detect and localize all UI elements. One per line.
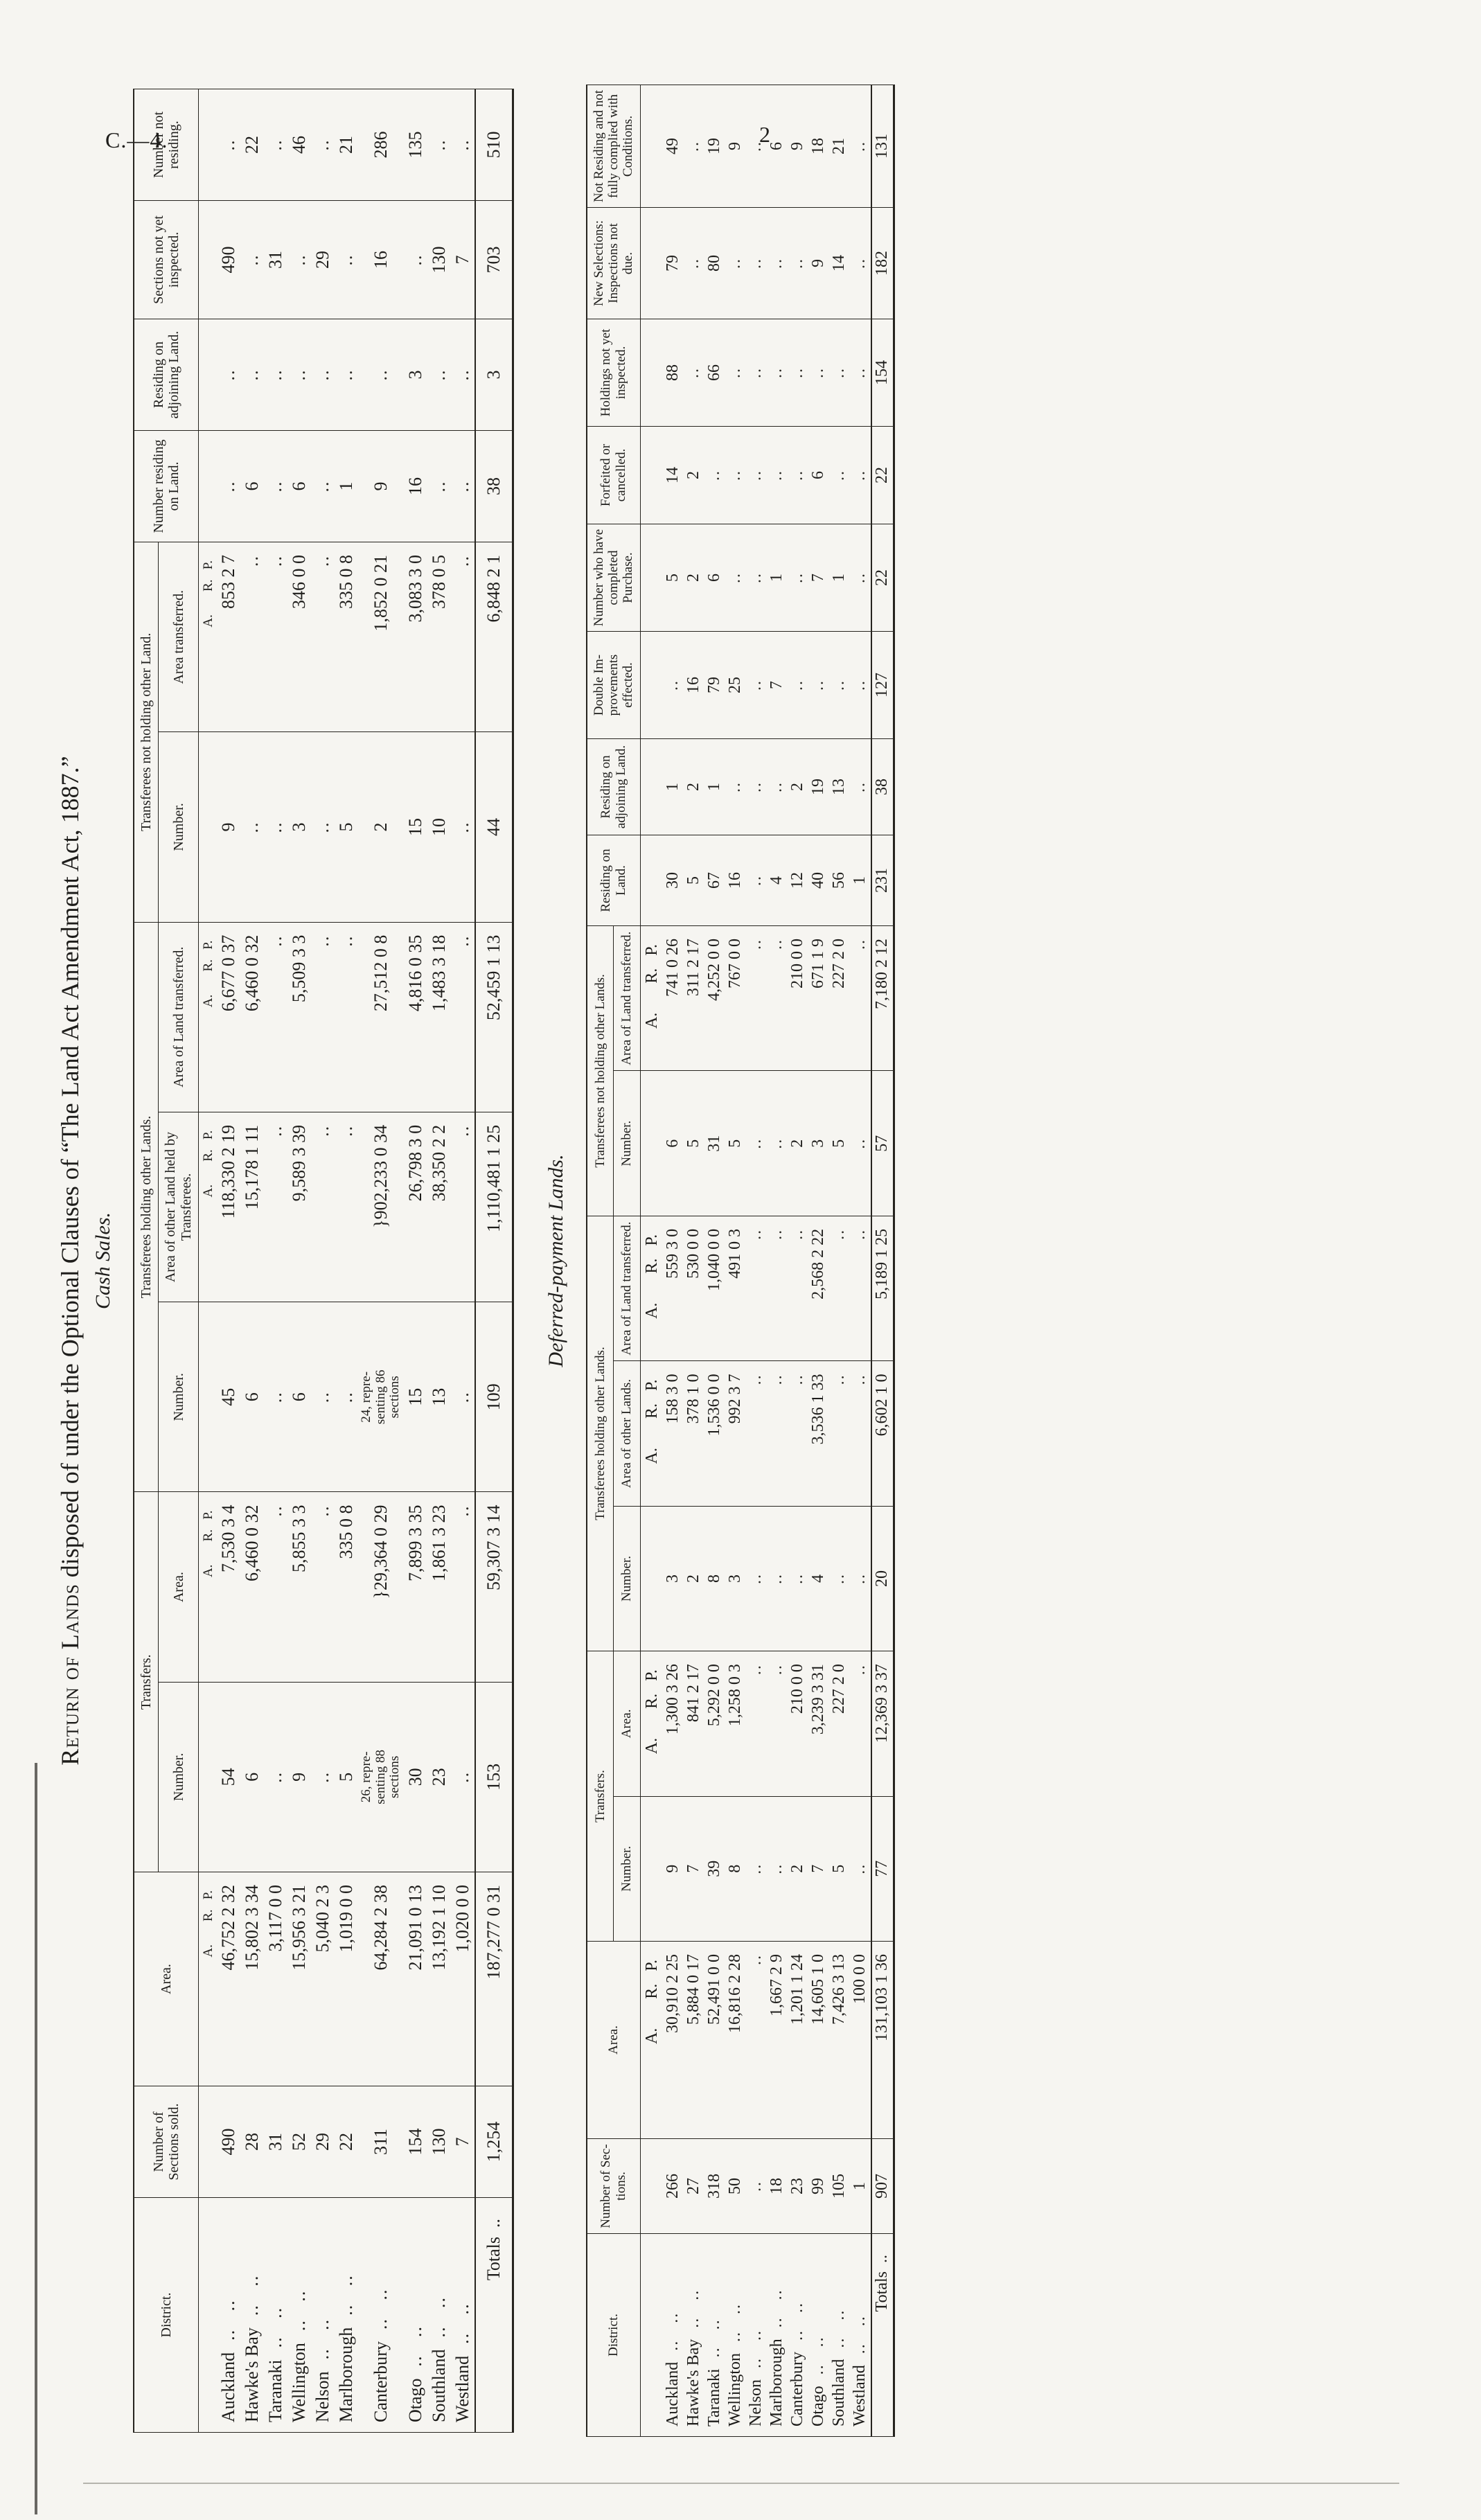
data-cell: 5 xyxy=(725,1071,746,1216)
totals-cell: 231 xyxy=(871,835,894,926)
totals-cell: 38 xyxy=(475,431,513,542)
col-header-not-holding-area-transferred: Area of Land transferred. xyxy=(614,926,640,1071)
data-cell: 15,178 1 11 xyxy=(240,1112,264,1302)
col-header-not-residing: Number not residing. xyxy=(134,89,199,201)
totals-label-cell: Totals .. xyxy=(871,2234,894,2437)
data-cell: .. xyxy=(788,524,808,632)
data-cell: 1 xyxy=(663,739,684,835)
data-cell: .. xyxy=(725,427,746,524)
district-name: Southland xyxy=(830,2359,848,2426)
col-header-completed-purchase: Number who have completed Purchase. xyxy=(587,524,640,632)
data-cell: 3 xyxy=(808,1071,829,1216)
data-cell: 158 3 0 xyxy=(663,1361,684,1506)
data-cell: 22 xyxy=(335,2086,358,2198)
district-name: Southland xyxy=(429,2350,449,2422)
data-cell: 25 xyxy=(725,632,746,739)
data-cell: .. xyxy=(767,427,788,524)
arp-label: A. R. P. xyxy=(199,922,218,1112)
data-cell: 29 xyxy=(311,2086,335,2198)
data-cell: .. xyxy=(850,1361,871,1506)
district-name: Wellington xyxy=(289,2343,309,2422)
arp-spacer xyxy=(640,1506,663,1651)
table-row: Marlborough .. ..221,019 0 05335 0 8....… xyxy=(335,89,358,2433)
col-header-sections-sold: Number of Sections sold. xyxy=(134,2086,199,2198)
data-cell: .. xyxy=(788,1216,808,1360)
data-cell: .. xyxy=(287,201,311,319)
data-cell: .. xyxy=(746,1651,767,1796)
district-name: Marlborough xyxy=(336,2327,356,2422)
data-cell: 46 xyxy=(287,89,311,201)
district-name: Otago xyxy=(405,2378,425,2422)
col-header-district: District. xyxy=(134,2198,199,2433)
totals-cell: 3 xyxy=(475,319,513,431)
col-header-holding-number: Number. xyxy=(159,1302,199,1492)
data-cell: 9 xyxy=(217,732,240,922)
district-name: Taranaki xyxy=(705,2368,723,2426)
totals-cell: 6,848 2 1 xyxy=(475,542,513,732)
data-cell: .. xyxy=(725,739,746,835)
data-cell: .. xyxy=(451,542,475,732)
totals-cell: 5,189 1 25 xyxy=(871,1216,894,1360)
data-cell: .. xyxy=(767,1506,788,1651)
deferred-payment-table: District. Number of Sec-tions. Area. Tra… xyxy=(586,85,895,2437)
arp-label: A. R. P. xyxy=(640,1216,663,1360)
data-cell: 490 xyxy=(217,2086,240,2198)
table-row: Auckland .. ..49046,752 2 32547,530 3 44… xyxy=(217,89,240,2433)
data-cell: 1 xyxy=(335,431,358,542)
district-name: Westland xyxy=(452,2356,472,2422)
data-cell: .. xyxy=(829,1506,850,1651)
totals-cell: 20 xyxy=(871,1506,894,1651)
data-cell: 6 xyxy=(287,1302,311,1492)
data-cell: .. xyxy=(767,1071,788,1216)
data-cell: 1,300 3 26 xyxy=(663,1651,684,1796)
data-cell: .. xyxy=(311,319,335,431)
table-row: Marlborough .. ..181,667 2 9............… xyxy=(767,85,788,2437)
table-row: Nelson .. ..............................… xyxy=(746,85,767,2437)
totals-cell: 703 xyxy=(475,201,513,319)
district-cell: Taranaki .. .. xyxy=(264,2198,287,2433)
data-cell: 1 xyxy=(850,2139,871,2234)
data-cell: 56 xyxy=(829,835,850,926)
district-cell: Wellington .. .. xyxy=(287,2198,311,2433)
data-cell: 14 xyxy=(829,208,850,319)
arp-label: A. R. P. xyxy=(640,1651,663,1796)
district-cell: Otago .. .. xyxy=(404,2198,427,2433)
totals-cell: 57 xyxy=(871,1071,894,1216)
data-cell: .. xyxy=(767,1216,788,1360)
data-cell: 9 xyxy=(808,208,829,319)
district-cell: Hawke's Bay .. .. xyxy=(240,2198,264,2433)
totals-row: Totals ..907131,103 1 367712,369 3 37206… xyxy=(871,85,894,2437)
data-cell: .. xyxy=(767,208,788,319)
data-cell: .. xyxy=(264,89,287,201)
col-header-forfeited: Forfeited or cancelled. xyxy=(587,427,640,524)
data-cell: 7,530 3 4 xyxy=(217,1492,240,1682)
arp-spacer xyxy=(199,431,218,542)
title-quote: “The Land Act Amendment Act, 1887.” xyxy=(56,756,84,1153)
data-cell: .. xyxy=(335,1112,358,1302)
data-cell: 5,884 0 17 xyxy=(684,1942,704,2139)
data-cell: 1 xyxy=(704,739,725,835)
data-cell: 99 xyxy=(808,2139,829,2234)
data-cell: .. xyxy=(264,922,287,1112)
leader-dots: .. .. xyxy=(242,2275,262,2328)
data-cell: 26,798 3 0 xyxy=(404,1112,427,1302)
district-cell: Hawke's Bay .. .. xyxy=(684,2234,704,2437)
arp-spacer xyxy=(199,201,218,319)
data-cell: 3,117 0 0 xyxy=(264,1872,287,2086)
data-cell: .. xyxy=(311,542,335,732)
data-cell: 30,910 2 25 xyxy=(663,1942,684,2139)
data-cell: 2 xyxy=(684,427,704,524)
totals-cell: 131,103 1 36 xyxy=(871,1942,894,2139)
data-cell: 16,816 2 28 xyxy=(725,1942,746,2139)
data-cell: 66 xyxy=(704,319,725,427)
col-header-holding-number: Number. xyxy=(614,1506,640,1651)
cash-sales-heading: Cash Sales. xyxy=(91,76,115,2445)
data-cell: 7,426 3 13 xyxy=(829,1942,850,2139)
data-cell: .. xyxy=(746,1361,767,1506)
col-header-holding-area-transferred: Area of Land transferred. xyxy=(159,922,199,1112)
data-cell: 5 xyxy=(335,732,358,922)
district-name: Westland xyxy=(851,2365,869,2426)
data-cell: 841 2 17 xyxy=(684,1651,704,1796)
data-cell: 5 xyxy=(829,1796,850,1941)
data-cell: 30 xyxy=(663,835,684,926)
data-cell: 80 xyxy=(704,208,725,319)
data-cell: .. xyxy=(451,922,475,1112)
data-cell: 52,491 0 0 xyxy=(704,1942,725,2139)
arp-spacer xyxy=(640,739,663,835)
data-cell: 992 3 7 xyxy=(725,1361,746,1506)
data-cell: .. xyxy=(808,632,829,739)
data-cell: .. xyxy=(240,542,264,732)
data-cell: 378 0 5 xyxy=(427,542,451,732)
data-cell: .. xyxy=(335,319,358,431)
district-name: Hawke's Bay xyxy=(242,2327,262,2422)
data-cell: 21 xyxy=(829,85,850,208)
data-cell: 135 xyxy=(404,89,427,201)
data-cell: }902,233 0 34 xyxy=(358,1112,404,1302)
col-header-transfers-number: Number. xyxy=(614,1796,640,1941)
data-cell: 6 xyxy=(808,427,829,524)
data-cell: .. xyxy=(850,85,871,208)
totals-cell: 44 xyxy=(475,732,513,922)
totals-cell: 182 xyxy=(871,208,894,319)
data-cell: 3 xyxy=(725,1506,746,1651)
data-cell: 9 xyxy=(663,1796,684,1941)
data-cell: 79 xyxy=(704,632,725,739)
totals-row: Totals ..1,254187,277 0 3115359,307 3 14… xyxy=(475,89,513,2433)
col-header-district: District. xyxy=(587,2234,640,2437)
data-cell: .. xyxy=(684,208,704,319)
data-cell: 9,589 3 39 xyxy=(287,1112,311,1302)
arp-label: A. R. P. xyxy=(640,1942,663,2139)
data-cell: 8 xyxy=(725,1796,746,1941)
arp-subheader-row: A. R. P.A. R. P.A. R. P.A. R. P.A. R. P. xyxy=(640,85,663,2437)
data-cell: .. xyxy=(829,1216,850,1360)
data-cell: 311 2 17 xyxy=(684,926,704,1071)
data-cell: .. xyxy=(829,1361,850,1506)
table-row: Nelson .. ..295,040 2 3.................… xyxy=(311,89,335,2433)
data-cell: .. xyxy=(264,1112,287,1302)
col-header-not-holding-number: Number. xyxy=(614,1071,640,1216)
data-cell: .. xyxy=(311,1112,335,1302)
col-header-residing-adjoining: Residing on adjoining Land. xyxy=(587,739,640,835)
leader-dots: .. .. xyxy=(664,2312,682,2362)
data-cell: .. xyxy=(311,89,335,201)
totals-cell: 510 xyxy=(475,89,513,201)
arp-spacer xyxy=(199,1682,218,1872)
data-cell: 16 xyxy=(404,431,427,542)
data-cell: .. xyxy=(767,1796,788,1941)
data-cell: 1,861 3 23 xyxy=(427,1492,451,1682)
data-cell: 2 xyxy=(684,1506,704,1651)
data-cell: 50 xyxy=(725,2139,746,2234)
data-cell: 118,330 2 19 xyxy=(217,1112,240,1302)
district-cell: Canterbury .. .. xyxy=(358,2198,404,2433)
data-cell: 1 xyxy=(829,524,850,632)
totals-cell: 52,459 1 13 xyxy=(475,922,513,1112)
district-name: Canterbury xyxy=(788,2352,806,2426)
table-row: Southland .. ..1057,426 3 135227 2 0....… xyxy=(829,85,850,2437)
data-cell: .. xyxy=(217,431,240,542)
data-cell: .. xyxy=(311,1302,335,1492)
data-cell: 4 xyxy=(808,1506,829,1651)
data-cell: .. xyxy=(264,319,287,431)
col-header-holding-area-transferred: Area of Land transferred. xyxy=(614,1216,640,1360)
district-cell: Westland .. .. xyxy=(451,2198,475,2433)
data-cell: 5 xyxy=(335,1682,358,1872)
data-cell: .. xyxy=(850,1216,871,1360)
leader-dots: .. .. xyxy=(371,2289,391,2342)
arp-label: A. R. P. xyxy=(199,1112,218,1302)
data-cell: 7 xyxy=(684,1796,704,1941)
arp-subheader-row: A. R. P.A. R. P.A. R. P.A. R. P.A. R. P. xyxy=(199,89,218,2433)
data-cell: 18 xyxy=(767,2139,788,2234)
district-name: Auckland xyxy=(218,2352,238,2422)
arp-spacer xyxy=(199,89,218,201)
data-cell: 7 xyxy=(808,1796,829,1941)
data-cell: 19 xyxy=(704,85,725,208)
table-row: Westland .. ..71,020 0 0................… xyxy=(451,89,475,2433)
data-cell: 1 xyxy=(850,835,871,926)
data-cell: 1,040 0 0 xyxy=(704,1216,725,1360)
col-header-not-holding-area-transferred: Area transferred. xyxy=(159,542,199,732)
col-header-double-improvements: Double Im-provements effected. xyxy=(587,632,640,739)
arp-spacer xyxy=(640,319,663,427)
data-cell: .. xyxy=(335,922,358,1112)
data-cell: 490 xyxy=(217,201,240,319)
data-cell: 46,752 2 32 xyxy=(217,1872,240,2086)
table-row: Wellington .. ..5215,956 3 2195,855 3 36… xyxy=(287,89,311,2433)
data-cell: 15,956 3 21 xyxy=(287,1872,311,2086)
data-cell: .. xyxy=(217,89,240,201)
arp-spacer xyxy=(199,2198,218,2433)
arp-spacer xyxy=(640,427,663,524)
arp-spacer xyxy=(640,835,663,926)
data-cell: 6 xyxy=(240,1302,264,1492)
data-cell: .. xyxy=(451,732,475,922)
data-cell: 27,512 0 8 xyxy=(358,922,404,1112)
arp-spacer xyxy=(640,2234,663,2437)
data-cell: .. xyxy=(746,835,767,926)
data-cell: .. xyxy=(746,208,767,319)
data-cell: 227 2 0 xyxy=(829,1651,850,1796)
data-cell: 286 xyxy=(358,89,404,201)
col-header-residing-on-land: Residing on Land. xyxy=(587,835,640,926)
data-cell: 31 xyxy=(264,2086,287,2198)
data-cell: .. xyxy=(451,1682,475,1872)
data-cell: 100 0 0 xyxy=(850,1942,871,2139)
district-cell: Taranaki .. .. xyxy=(704,2234,725,2437)
data-cell: .. xyxy=(264,1682,287,1872)
data-cell: 671 1 9 xyxy=(808,926,829,1071)
data-cell: .. xyxy=(767,1651,788,1796)
table-row: Otago .. ..15421,091 0 13307,899 3 35152… xyxy=(404,89,427,2433)
data-cell: 15 xyxy=(404,1302,427,1492)
data-cell: .. xyxy=(264,1302,287,1492)
data-cell: .. xyxy=(746,739,767,835)
data-cell: 5 xyxy=(684,835,704,926)
col-header-area-of-other-lands: Area of other Lands. xyxy=(614,1361,640,1506)
data-cell: 5,509 3 3 xyxy=(287,922,311,1112)
col-header-number-of-sections: Number of Sec-tions. xyxy=(587,2139,640,2234)
data-cell: .. xyxy=(451,1112,475,1302)
data-cell: 64,284 2 38 xyxy=(358,1872,404,2086)
totals-cell: 131 xyxy=(871,85,894,208)
data-cell: 23 xyxy=(427,1682,451,1872)
data-cell: 266 xyxy=(663,2139,684,2234)
data-cell: 1,852 0 21 xyxy=(358,542,404,732)
totals-cell: 77 xyxy=(871,1796,894,1941)
data-cell: .. xyxy=(311,732,335,922)
leader-dots: .. .. xyxy=(289,2290,309,2343)
data-cell: 13,192 1 10 xyxy=(427,1872,451,2086)
data-cell: 2 xyxy=(788,739,808,835)
data-cell: 6 xyxy=(240,431,264,542)
data-cell: 1,258 0 3 xyxy=(725,1651,746,1796)
data-cell: 2 xyxy=(684,739,704,835)
data-cell: 67 xyxy=(704,835,725,926)
table-row: Taranaki .. ..313,117 0 0...............… xyxy=(264,89,287,2433)
data-cell: .. xyxy=(767,1361,788,1506)
data-cell: 530 0 0 xyxy=(684,1216,704,1360)
data-cell: 10 xyxy=(427,732,451,922)
col-group-transfers: Transfers. xyxy=(587,1651,614,1942)
data-cell: 346 0 0 xyxy=(287,542,311,732)
totals-cell: 187,277 0 31 xyxy=(475,1872,513,2086)
totals-cell: 1,110,481 1 25 xyxy=(475,1112,513,1302)
data-cell: .. xyxy=(829,427,850,524)
data-cell: 6 xyxy=(240,1682,264,1872)
district-cell: Nelson .. .. xyxy=(311,2198,335,2433)
arp-spacer xyxy=(640,632,663,739)
table-row: Canterbury .. ..231,201 1 242210 0 0....… xyxy=(788,85,808,2437)
scan-bottom-line xyxy=(83,2483,1399,2484)
col-header-new-selections: New Selections: Inspections not due. xyxy=(587,208,640,319)
data-cell: 3 xyxy=(404,319,427,431)
data-cell: 7 xyxy=(767,632,788,739)
table-row: Southland .. ..13013,192 1 10231,861 3 2… xyxy=(427,89,451,2433)
cash-table-header: District. Number of Sections sold. Area.… xyxy=(134,89,199,2433)
arp-label: A. R. P. xyxy=(640,926,663,1071)
data-cell: .. xyxy=(829,319,850,427)
arp-label: A. R. P. xyxy=(199,542,218,732)
data-cell: 23 xyxy=(788,2139,808,2234)
data-cell: .. xyxy=(684,319,704,427)
data-cell: .. xyxy=(850,1651,871,1796)
data-cell: 9 xyxy=(358,431,404,542)
data-cell: .. xyxy=(217,319,240,431)
data-cell: 15 xyxy=(404,732,427,922)
data-cell: 1,019 0 0 xyxy=(335,1872,358,2086)
data-cell: 7 xyxy=(451,201,475,319)
data-cell: 6,460 0 32 xyxy=(240,1492,264,1682)
arp-spacer xyxy=(199,319,218,431)
col-header-area: Area. xyxy=(134,1872,199,2086)
data-cell: .. xyxy=(264,542,287,732)
data-cell: 4,816 0 35 xyxy=(404,922,427,1112)
data-cell: .. xyxy=(850,319,871,427)
totals-cell: 38 xyxy=(871,739,894,835)
table-row: Hawke's Bay .. ..2815,802 3 3466,460 0 3… xyxy=(240,89,264,2433)
table-row: Wellington .. ..5016,816 2 2881,258 0 33… xyxy=(725,85,746,2437)
arp-spacer xyxy=(640,2139,663,2234)
district-cell: Auckland .. .. xyxy=(217,2198,240,2433)
data-cell: .. xyxy=(850,632,871,739)
data-cell: 767 0 0 xyxy=(725,926,746,1071)
deferred-table-body: A. R. P.A. R. P.A. R. P.A. R. P.A. R. P.… xyxy=(640,85,894,2437)
data-cell: 3,536 1 33 xyxy=(808,1361,829,1506)
table-row: Auckland .. ..26630,910 2 2591,300 3 263… xyxy=(663,85,684,2437)
col-header-not-residing-conditions: Not Residing and not fully complied with… xyxy=(587,85,640,208)
col-header-area-other-land-held: Area of other Land held by Transferees. xyxy=(159,1112,199,1302)
data-cell: 13 xyxy=(829,739,850,835)
document-title: Return of Lands disposed of under the Op… xyxy=(55,76,85,2445)
district-name: Marlborough xyxy=(768,2339,786,2426)
data-cell: 105 xyxy=(829,2139,850,2234)
data-cell: .. xyxy=(746,1796,767,1941)
data-cell: 227 2 0 xyxy=(829,926,850,1071)
data-cell: 30 xyxy=(404,1682,427,1872)
table-row: Hawke's Bay .. ..275,884 0 177841 2 1723… xyxy=(684,85,704,2437)
data-cell: .. xyxy=(788,427,808,524)
data-cell: 16 xyxy=(358,201,404,319)
data-cell: .. xyxy=(746,427,767,524)
leader-dots: .. .. xyxy=(429,2296,449,2350)
district-name: Wellington xyxy=(726,2353,744,2426)
col-header-residing-on-land: Number residing on Land. xyxy=(134,431,199,542)
data-cell: .. xyxy=(850,1506,871,1651)
data-cell: 29 xyxy=(311,201,335,319)
data-cell: .. xyxy=(788,1361,808,1506)
data-cell: 5 xyxy=(829,1071,850,1216)
data-cell: .. xyxy=(427,431,451,542)
data-cell: .. xyxy=(451,319,475,431)
data-cell: .. xyxy=(746,1506,767,1651)
table-row: Canterbury .. ..31164,284 2 3826, repre-… xyxy=(358,89,404,2433)
totals-cell: 907 xyxy=(871,2139,894,2234)
data-cell: .. xyxy=(850,208,871,319)
data-cell: .. xyxy=(725,319,746,427)
district-cell: Southland .. .. xyxy=(427,2198,451,2433)
data-cell: 6,677 0 37 xyxy=(217,922,240,1112)
data-cell: 21,091 0 13 xyxy=(404,1872,427,2086)
arp-spacer xyxy=(640,524,663,632)
data-cell: 2,568 2 22 xyxy=(808,1216,829,1360)
